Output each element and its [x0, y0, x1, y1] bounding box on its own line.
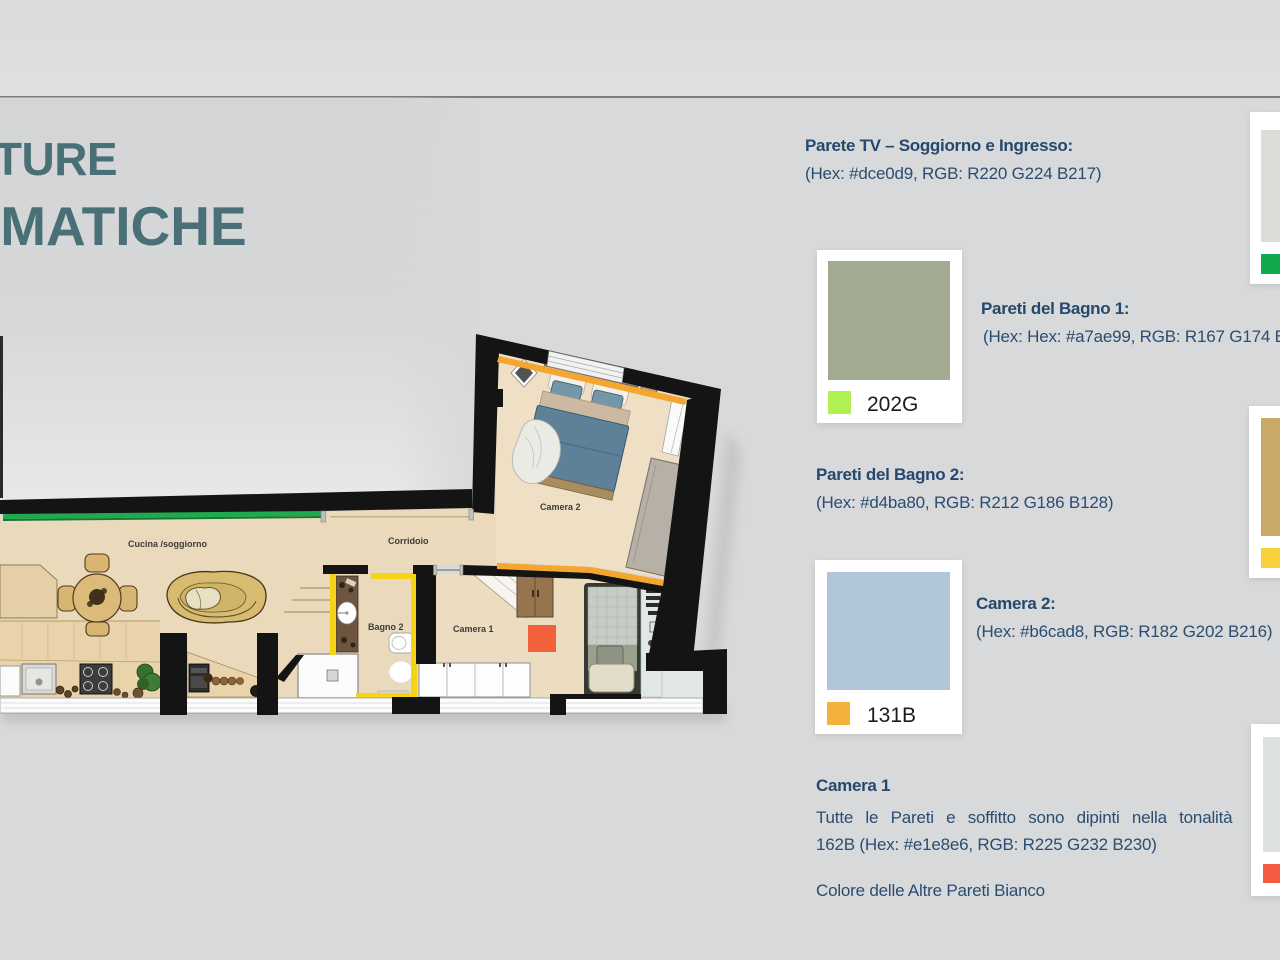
svg-text:Camera 2: Camera 2 — [540, 502, 581, 512]
svg-text:Camera 1: Camera 1 — [453, 624, 494, 634]
svg-text:Corridoio: Corridoio — [388, 536, 429, 546]
svg-text:Cucina /soggiorno: Cucina /soggiorno — [128, 539, 208, 549]
svg-text:Bagno 2: Bagno 2 — [368, 622, 404, 632]
